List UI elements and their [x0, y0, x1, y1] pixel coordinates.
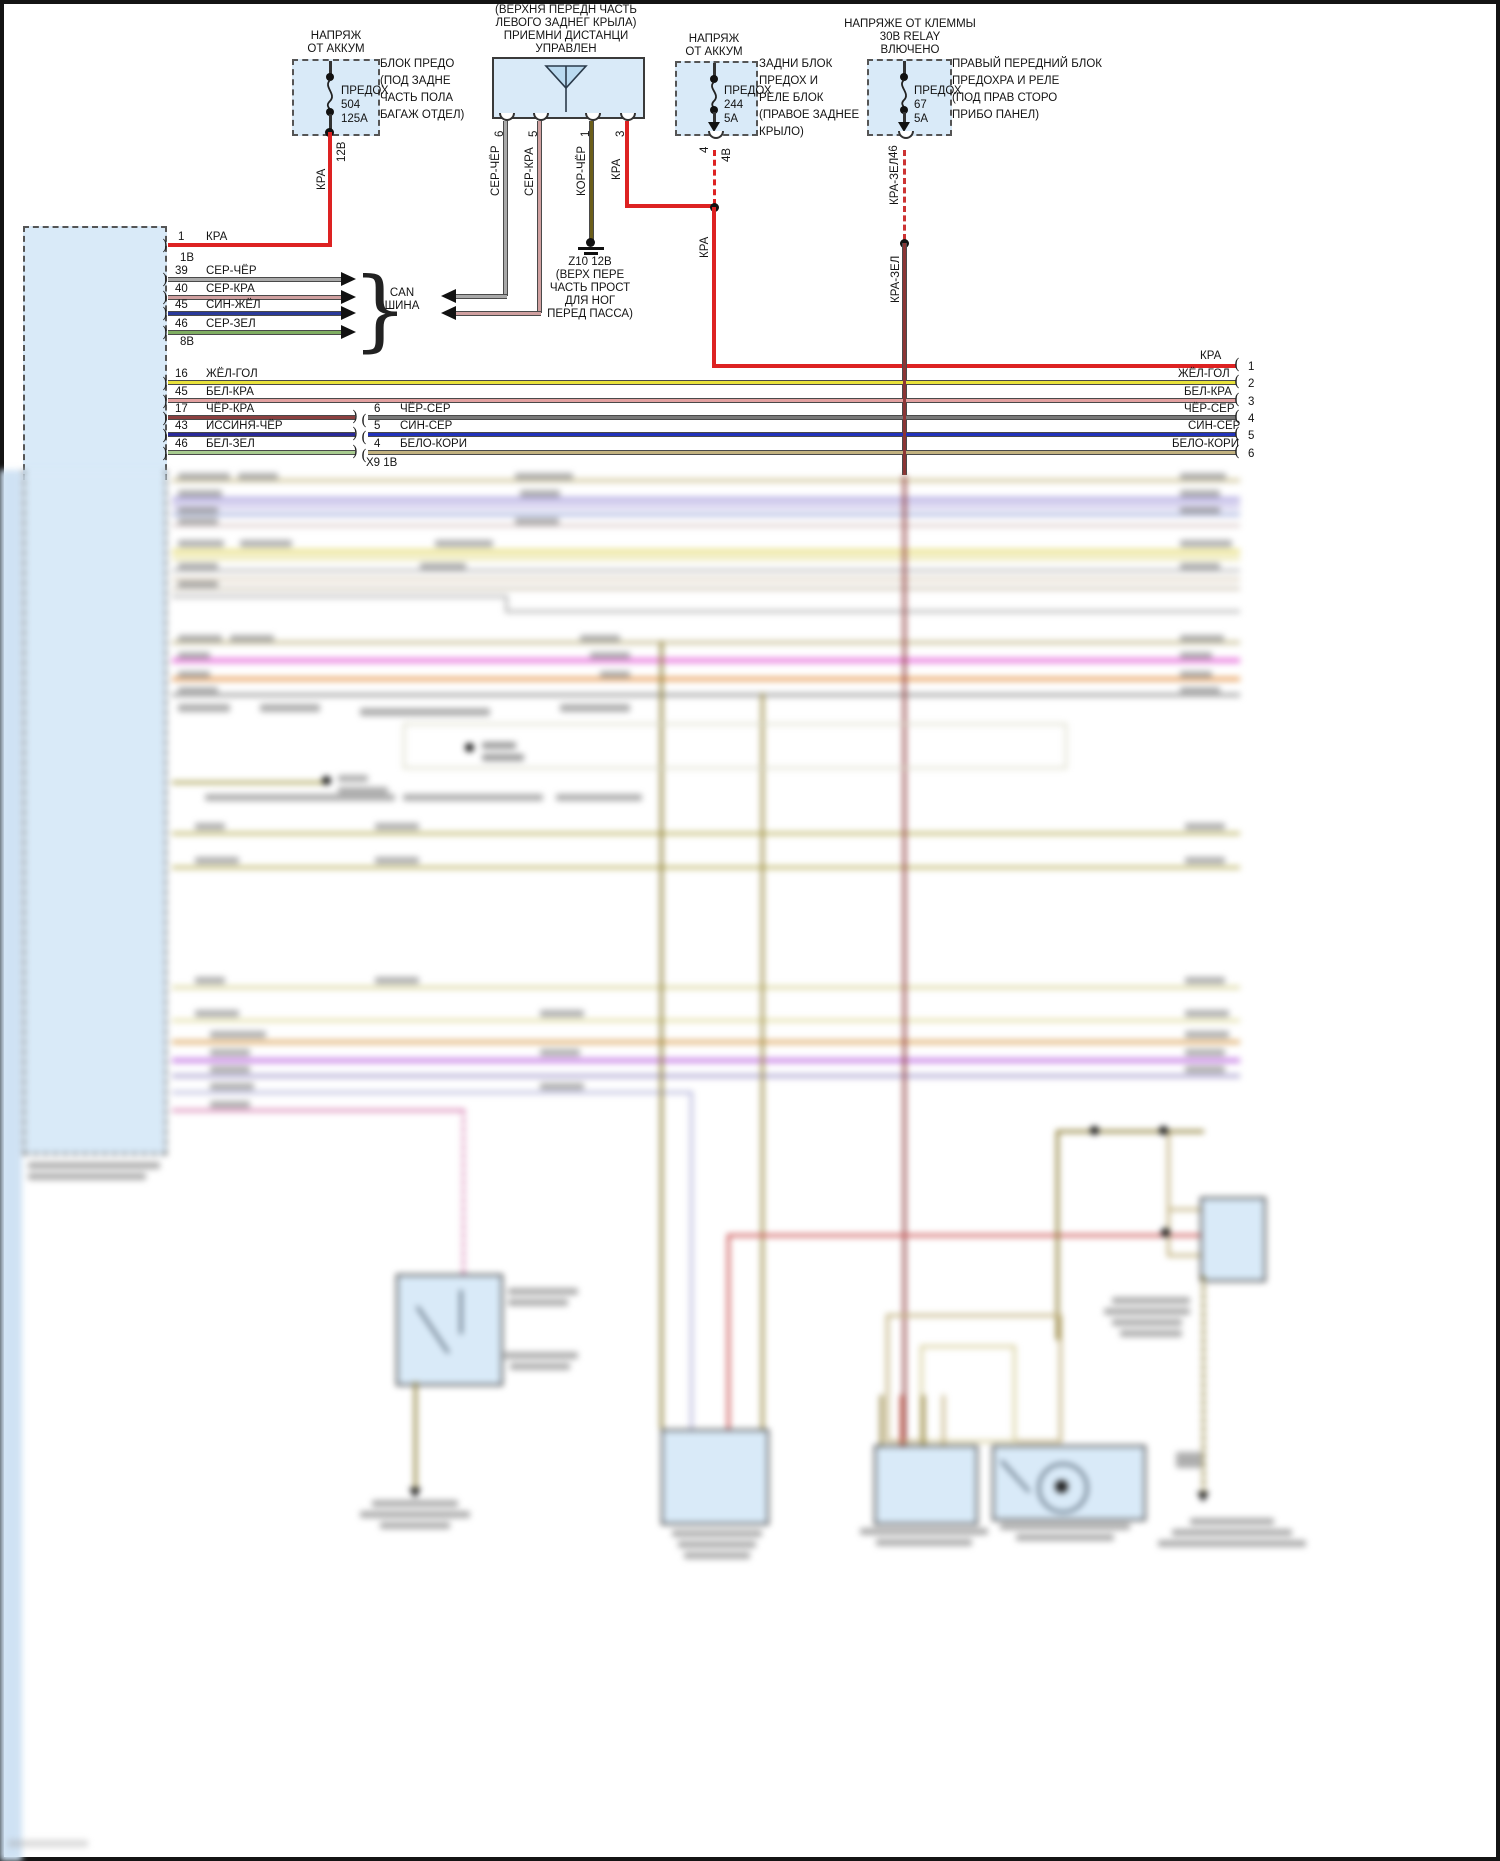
row1-right-pin: 1 — [1248, 361, 1254, 374]
module-connector-8b: 8В — [180, 336, 194, 349]
row5-right-pin: 5 — [1248, 430, 1254, 443]
module-pin46c-bump: ) — [162, 325, 168, 340]
wire-kra-dashed-244 — [713, 150, 716, 205]
row1-right-wire-label: КРА — [1200, 350, 1221, 363]
wire-row6-right — [368, 451, 1236, 454]
fuse244-location-5: КРЫЛО) — [759, 126, 804, 139]
row5-mid-pin: 5 — [374, 420, 380, 433]
row6-mid-pin: 4 — [374, 438, 380, 451]
wire-kra-label-504: КРА — [316, 169, 328, 190]
row5-conn-b: ( — [361, 430, 367, 445]
wire-kra-feed-v — [712, 207, 716, 368]
antenna-module-title: (ВЕРХНЯ ПЕРЕДН ЧАСТЬЛЕВОГО ЗАДНЕГ КРЫЛА)… — [466, 4, 666, 56]
row6-right-wire-label: БЕЛО-КОРИ — [1172, 438, 1239, 451]
wire-row2 — [168, 381, 1236, 384]
row5-right-wire-label: СИН-СЕР — [1188, 420, 1240, 433]
fuse67-pin-bump — [898, 131, 914, 139]
row2-right-pin: 2 — [1248, 378, 1254, 391]
module-pin40-bump: ) — [162, 290, 168, 305]
row5-conn-a: ) — [352, 426, 358, 441]
antenna-pin5-bump — [533, 113, 549, 121]
wire-row5-right — [368, 433, 1236, 436]
fuse504-location-3: ЧАСТЬ ПОЛА — [380, 92, 453, 105]
fuse67-source-title: НАПРЯЖЕ ОТ КЛЕММЫ30В RELAY ВЛЮЧЕНО — [830, 18, 990, 57]
wire-kra-ant-v — [625, 121, 629, 207]
ground-z10-label: Z10 12В(ВЕРХ ПЕРЕ ЧАСТЬ ПРОСТДЛЯ НОГ ПЕР… — [528, 256, 652, 321]
fuse67-rating: 5А — [914, 113, 928, 126]
wire-ser-chyor-label: СЕР-ЧЁР — [490, 146, 502, 197]
module-pin17-wire: ЧЁР-КРА — [206, 403, 254, 416]
row2-right-wire-label: ЖЁЛ-ГОЛ — [1178, 368, 1230, 381]
ground-bar-1 — [578, 247, 604, 250]
wire-ser-kra-label: СЕР-КРА — [524, 147, 536, 196]
wire-kra-vertical-504 — [328, 132, 332, 247]
wire-row6-left — [168, 451, 355, 454]
fuse504-fuse-icon — [321, 72, 339, 118]
ground-dot — [586, 238, 595, 247]
module-connector-1b: 1В — [180, 252, 194, 265]
module-pin39-label: 39 — [175, 265, 188, 278]
module-pin45-label: 45 — [175, 386, 188, 399]
row4-right-wire-label: ЧЁР-СЕР — [1184, 403, 1235, 416]
wire-kor-chyor-label: КОР-ЧЁР — [576, 146, 588, 196]
antenna-pin3-bump — [620, 113, 636, 121]
module-pin45c-label: 45 — [175, 299, 188, 312]
antenna-icon — [536, 62, 596, 114]
module-pin46c-label: 46 — [175, 318, 188, 331]
row4-conn-b: ( — [361, 413, 367, 428]
module-pin46-label: 46 — [175, 438, 188, 451]
wire-kra-zel-label-1: КРА-ЗЕЛ — [889, 158, 901, 205]
wire-12v-label: 12В — [336, 142, 348, 162]
row3-right-pin: 3 — [1248, 396, 1254, 409]
wiring-diagram-page: НАПРЯЖОТ АККУМ ПРЕДОХ 504 125А БЛОК ПРЕД… — [0, 0, 1500, 1861]
row6-right-pin: 6 — [1248, 448, 1254, 461]
wire-kra-ant-h — [625, 204, 717, 208]
fuse244-number: 244 — [724, 99, 743, 112]
module-pin16-bump: ) — [162, 376, 168, 391]
wire-kra-row1 — [168, 243, 332, 247]
fuse67-location-4: ПРИБО ПАНЕЛ) — [952, 109, 1039, 122]
module-pin43-bump: ) — [162, 428, 168, 443]
module-pin45c-wire: СИН-ЖЁЛ — [206, 299, 261, 312]
module-pin43-wire: ИССИНЯ-ЧЁР — [206, 420, 283, 433]
module-pin45-wire: БЕЛ-КРА — [206, 386, 254, 399]
antenna-pin1-bump — [585, 113, 601, 121]
fuse67-number: 67 — [914, 99, 927, 112]
can-arrow-left-1 — [441, 289, 456, 303]
fuse67-location-3: (ПОД ПРАВ СТОРО — [952, 92, 1057, 105]
connector-x9-label: Х9 1В — [366, 457, 397, 470]
module-pin16-label: 16 — [175, 368, 188, 381]
left-module-box-top — [23, 226, 167, 480]
fuse504-location-4: БАГАЖ ОТДЕЛ) — [380, 109, 464, 122]
antenna-pin6-bump — [499, 113, 515, 121]
row4-right-pin: 4 — [1248, 413, 1254, 426]
module-pin43-label: 43 — [175, 420, 188, 433]
wire-kra-zel-dashed — [903, 150, 906, 240]
row4-mid-pin: 6 — [374, 403, 380, 416]
module-pin45-bump: ) — [162, 394, 168, 409]
blurred-lower-region — [0, 470, 1500, 1861]
wire-kra-label-ant: КРА — [611, 159, 623, 180]
fuse244-location-1: ЗАДНИ БЛОК — [759, 58, 832, 71]
fuse244-fuse-icon — [705, 74, 723, 116]
module-pin46-wire: БЕЛ-ЗЕЛ — [206, 438, 255, 451]
module-pin40-wire: СЕР-КРА — [206, 283, 255, 296]
row4-conn-a: ) — [352, 409, 358, 424]
row4-mid-wire: ЧЁР-СЕР — [400, 403, 451, 416]
module-pin46-bump: ) — [162, 446, 168, 461]
fuse67-pin-label: 46 — [888, 145, 900, 158]
can-bus-label: CANШИНА — [378, 287, 426, 313]
fuse244-voltage-label: 4В — [721, 148, 733, 162]
row6-right-bump: ( — [1234, 444, 1240, 459]
fuse244-rating: 5А — [724, 113, 738, 126]
row6-conn-a: ) — [352, 444, 358, 459]
wire-row5-left — [168, 433, 355, 436]
module-pin40-label: 40 — [175, 283, 188, 296]
row3-right-wire-label: БЕЛ-КРА — [1184, 386, 1232, 399]
wire-row4-right — [368, 416, 1236, 419]
row6-mid-wire: БЕЛО-КОРИ — [400, 438, 467, 451]
fuse244-source-title: НАПРЯЖОТ АККУМ — [666, 33, 762, 59]
fuse504-source-title: НАПРЯЖОТ АККУМ — [288, 30, 384, 56]
wire-can-3 — [168, 312, 341, 315]
module-pin17-bump: ) — [162, 411, 168, 426]
fuse504-location-1: БЛОК ПРЕДО — [380, 58, 454, 71]
fuse67-location-2: ПРЕДОХРА И РЕЛЕ — [952, 75, 1059, 88]
wire-can-1 — [168, 278, 341, 281]
wire-can-4 — [168, 331, 341, 334]
row5-mid-wire: СИН-СЕР — [400, 420, 452, 433]
module-pin16-wire: ЖЁЛ-ГОЛ — [206, 368, 258, 381]
fuse244-pin-label: 4 — [699, 147, 711, 153]
module-pin46c-wire: СЕР-ЗЕЛ — [206, 318, 256, 331]
wire-row4-left — [168, 416, 355, 419]
fuse504-number: 504 — [341, 99, 360, 112]
wire-ser-chyor-h — [455, 295, 507, 298]
module-pin17-label: 17 — [175, 403, 188, 416]
module-pin39-wire: СЕР-ЧЁР — [206, 265, 257, 278]
fuse244-location-2: ПРЕДОХ И — [759, 75, 818, 88]
can-arrow-left-2 — [441, 306, 456, 320]
fuse504-location-2: (ПОД ЗАДНЕ — [380, 75, 451, 88]
wire-kra-label-244: КРА — [699, 237, 711, 258]
fuse244-location-3: РЕЛЕ БЛОК — [759, 92, 824, 105]
wire-ser-chyor-v — [504, 121, 507, 296]
module-pin45c-bump: ) — [162, 306, 168, 321]
wire-row3 — [168, 399, 1236, 402]
row2-right-bump: ( — [1234, 374, 1240, 389]
row1-right-bump: ( — [1234, 357, 1240, 372]
wire-kra-zel-label-2: КРА-ЗЕЛ — [890, 256, 902, 303]
fuse67-fuse-icon — [895, 72, 913, 116]
module-pin1-bump: ) — [162, 238, 168, 253]
fuse67-location-1: ПРАВЫЙ ПЕРЕДНИЙ БЛОК — [952, 58, 1102, 71]
module-pin39-bump: ) — [162, 272, 168, 287]
fuse504-rating: 125А — [341, 113, 368, 126]
wire-kor-chyor-v — [590, 121, 593, 242]
fuse244-location-4: (ПРАВОЕ ЗАДНЕЕ — [759, 109, 859, 122]
fuse244-pin-bump — [708, 131, 724, 139]
ground-bar-2 — [584, 252, 598, 255]
wire-kra-zel-v-cross — [903, 360, 906, 475]
wire-kra-feed-h — [712, 364, 1236, 368]
